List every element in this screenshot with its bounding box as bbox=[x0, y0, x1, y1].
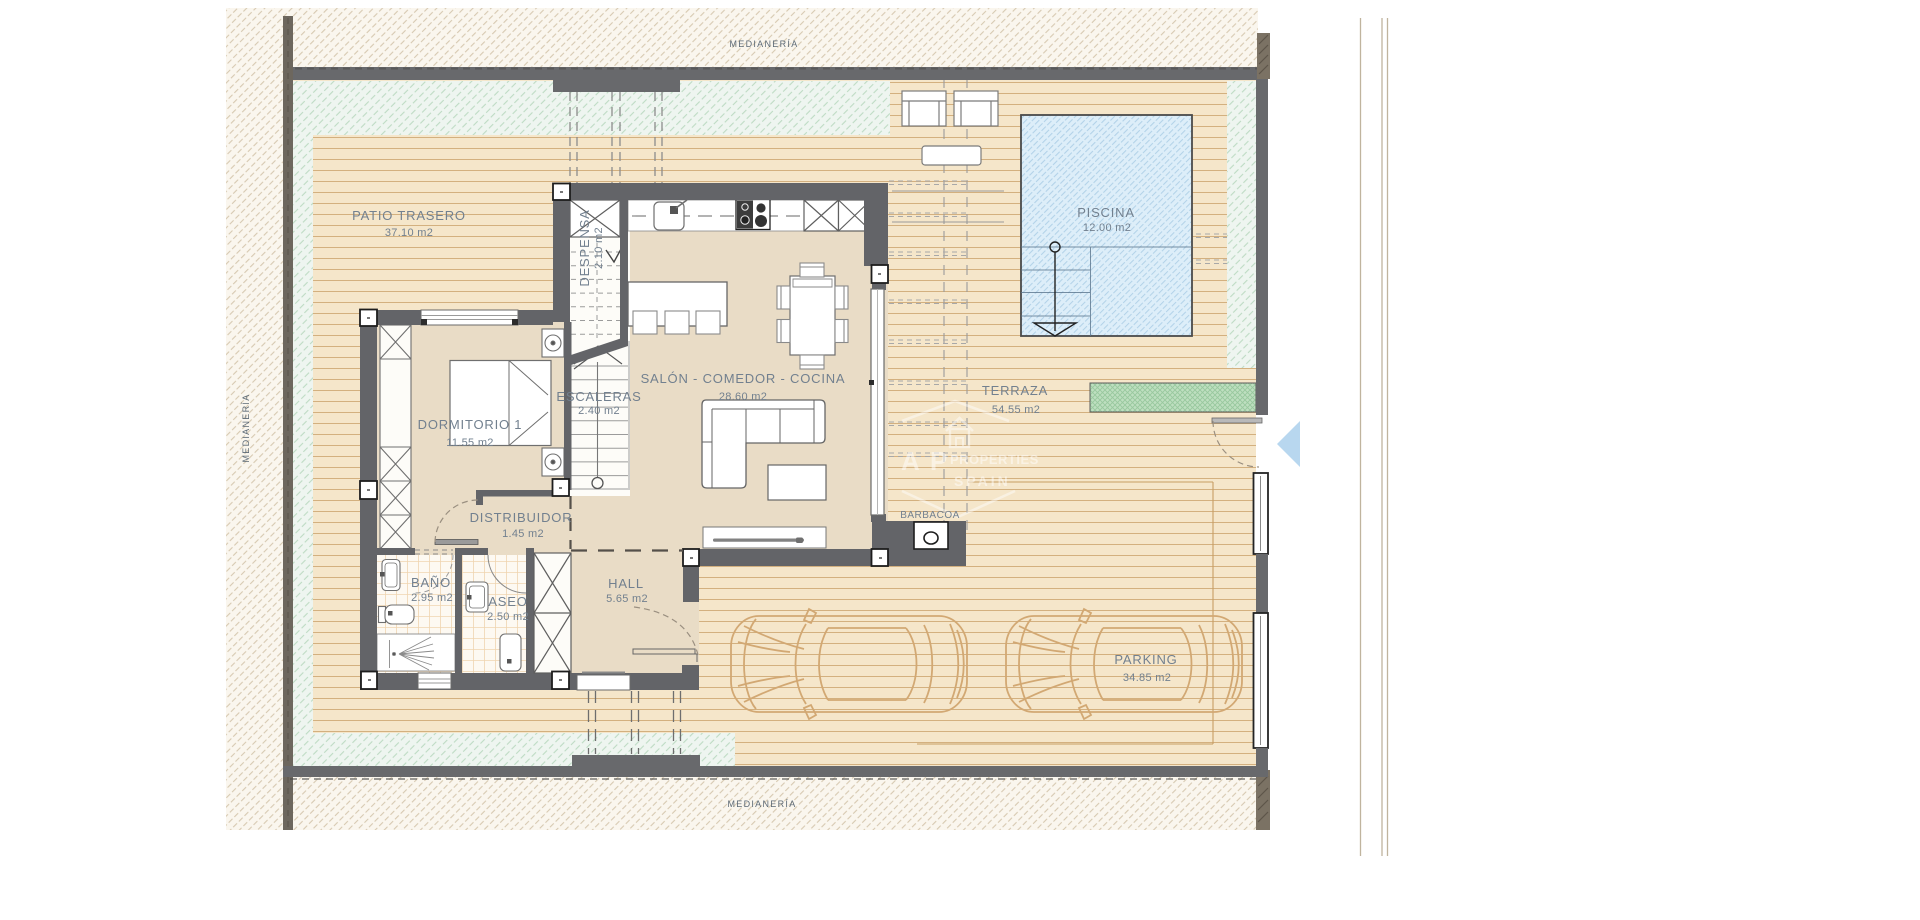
svg-text:1.45 m2: 1.45 m2 bbox=[502, 528, 544, 540]
svg-text:MEDIANERÍA: MEDIANERÍA bbox=[729, 39, 798, 49]
svg-text:PATIO TRASERO: PATIO TRASERO bbox=[352, 208, 466, 223]
svg-text:SALÓN - COMEDOR - COCINA: SALÓN - COMEDOR - COCINA bbox=[641, 371, 846, 386]
svg-text:BARBACOA: BARBACOA bbox=[900, 510, 960, 521]
svg-text:2.40 m2: 2.40 m2 bbox=[578, 405, 620, 417]
svg-text:34.85 m2: 34.85 m2 bbox=[1123, 672, 1171, 684]
svg-text:SPAIN: SPAIN bbox=[954, 473, 1011, 489]
svg-text:54.55 m2: 54.55 m2 bbox=[992, 404, 1040, 416]
svg-text:12.00 m2: 12.00 m2 bbox=[1083, 222, 1131, 234]
svg-text:DISTRIBUIDOR: DISTRIBUIDOR bbox=[470, 510, 573, 525]
svg-text:DORMITORIO 1: DORMITORIO 1 bbox=[418, 417, 523, 432]
svg-text:2.95 m2: 2.95 m2 bbox=[411, 592, 453, 604]
svg-text:ESCALERAS: ESCALERAS bbox=[556, 389, 641, 404]
svg-text:PARKING: PARKING bbox=[1114, 652, 1177, 667]
svg-text:28.60 m2: 28.60 m2 bbox=[719, 391, 767, 403]
svg-text:MEDIANERÍA: MEDIANERÍA bbox=[727, 799, 796, 809]
svg-text:37.10 m2: 37.10 m2 bbox=[385, 227, 433, 239]
svg-text:DESPENSA: DESPENSA bbox=[577, 209, 592, 286]
svg-text:TERRAZA: TERRAZA bbox=[982, 383, 1048, 398]
svg-text:5.65 m2: 5.65 m2 bbox=[606, 593, 648, 605]
svg-text:11.55 m2: 11.55 m2 bbox=[446, 437, 493, 449]
svg-text:PISCINA: PISCINA bbox=[1077, 205, 1135, 220]
svg-text:MEDIANERÍA: MEDIANERÍA bbox=[241, 393, 251, 462]
svg-text:ASEO: ASEO bbox=[488, 594, 527, 609]
svg-text:HALL: HALL bbox=[608, 576, 644, 591]
svg-text:A P: A P bbox=[901, 446, 949, 476]
svg-text:PROPERTIES: PROPERTIES bbox=[950, 452, 1039, 467]
svg-text:2.10 m2: 2.10 m2 bbox=[593, 227, 605, 269]
svg-text:BAÑO: BAÑO bbox=[411, 575, 451, 590]
svg-text:2.50 m2: 2.50 m2 bbox=[487, 611, 529, 623]
